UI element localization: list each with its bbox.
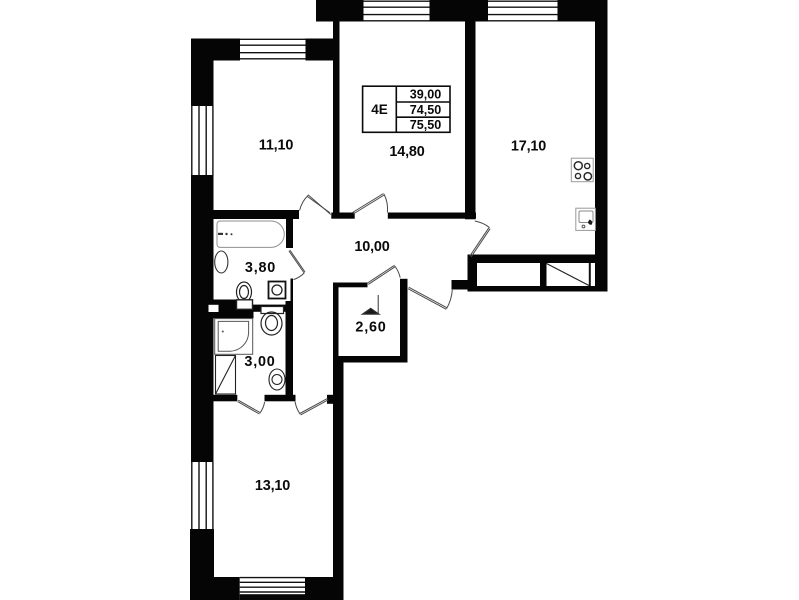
svg-text:3,80: 3,80 xyxy=(245,260,276,276)
svg-text:13,10: 13,10 xyxy=(255,478,290,494)
svg-text:3,00: 3,00 xyxy=(244,354,275,370)
svg-text:11,10: 11,10 xyxy=(259,138,294,154)
svg-text:2,60: 2,60 xyxy=(355,320,386,336)
svg-text:4Е: 4Е xyxy=(371,102,388,117)
svg-text:17,10: 17,10 xyxy=(511,139,546,155)
svg-text:10,00: 10,00 xyxy=(354,239,389,255)
svg-text:75,50: 75,50 xyxy=(410,118,442,132)
svg-text:74,50: 74,50 xyxy=(410,103,442,117)
svg-text:14,80: 14,80 xyxy=(389,144,424,160)
svg-text:39,00: 39,00 xyxy=(410,87,442,101)
